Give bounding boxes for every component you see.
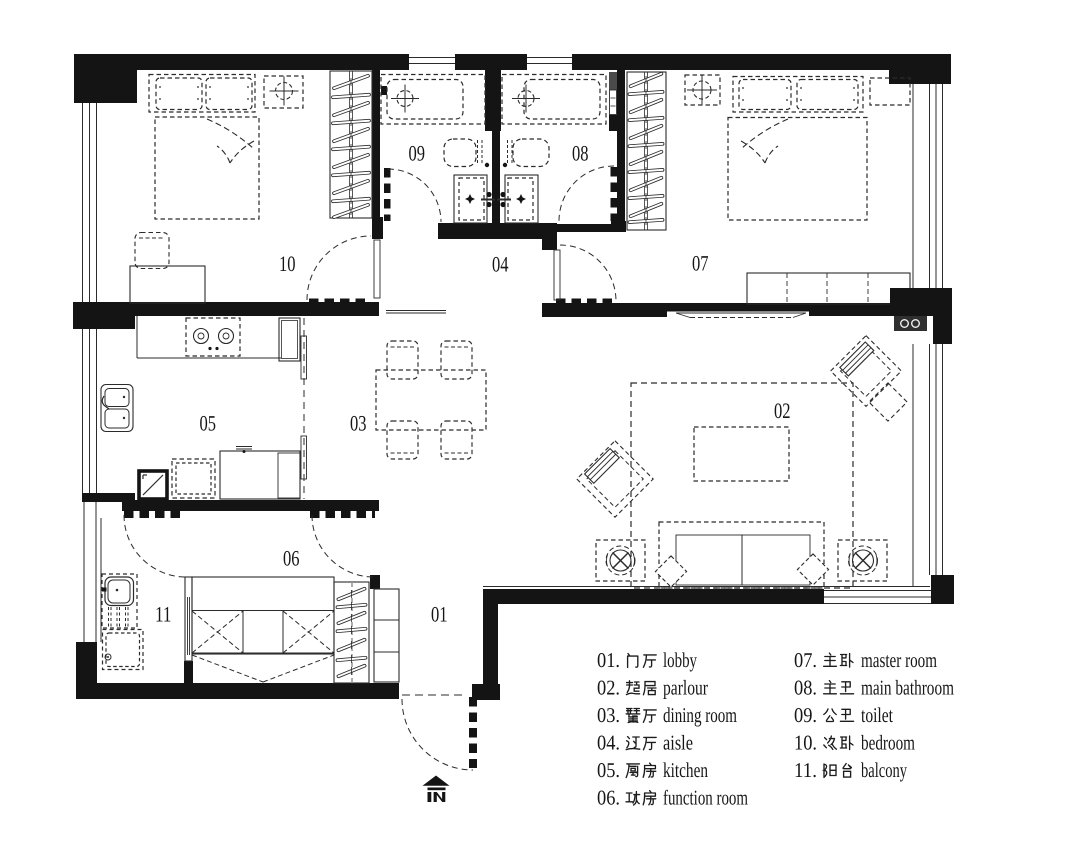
svg-text:08.: 08.	[794, 676, 817, 700]
svg-text:02: 02	[774, 398, 791, 423]
svg-text:08: 08	[572, 141, 589, 166]
svg-text:07.: 07.	[794, 648, 817, 672]
svg-text:11: 11	[155, 602, 172, 627]
svg-text:09.: 09.	[794, 703, 817, 727]
svg-text:02.: 02.	[597, 676, 620, 700]
svg-text:dining room: dining room	[663, 703, 737, 727]
svg-text:07: 07	[692, 251, 709, 276]
svg-text:parlour: parlour	[663, 676, 708, 700]
svg-text:01: 01	[431, 602, 448, 627]
svg-text:05.: 05.	[597, 758, 620, 782]
svg-text:balcony: balcony	[861, 758, 907, 782]
svg-text:11.: 11.	[794, 758, 817, 782]
svg-text:03: 03	[350, 411, 367, 436]
svg-text:05: 05	[200, 411, 217, 436]
svg-text:03.: 03.	[597, 703, 620, 727]
svg-text:04.: 04.	[597, 731, 620, 755]
svg-text:10: 10	[279, 251, 296, 276]
svg-text:lobby: lobby	[663, 648, 697, 672]
svg-text:09: 09	[409, 141, 426, 166]
svg-text:toilet: toilet	[861, 703, 893, 727]
svg-text:01.: 01.	[597, 648, 620, 672]
svg-text:function room: function room	[663, 786, 748, 810]
svg-text:06: 06	[283, 546, 300, 571]
svg-text:10.: 10.	[794, 731, 817, 755]
svg-text:bedroom: bedroom	[861, 731, 915, 755]
svg-text:main bathroom: main bathroom	[861, 676, 954, 700]
svg-text:04: 04	[492, 252, 509, 277]
svg-text:master room: master room	[861, 648, 937, 672]
svg-text:kitchen: kitchen	[663, 758, 708, 782]
svg-text:06.: 06.	[597, 786, 620, 810]
svg-text:aisle: aisle	[663, 731, 693, 755]
